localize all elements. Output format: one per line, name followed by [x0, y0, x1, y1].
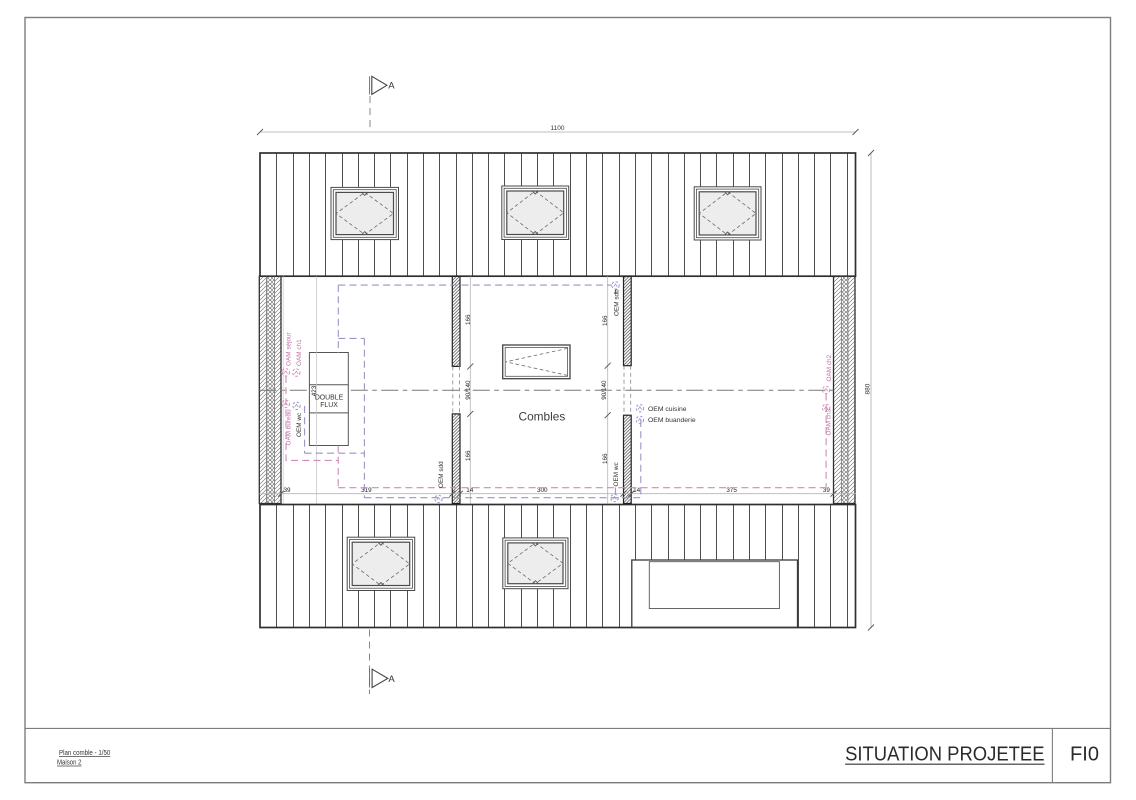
svg-text:DOUBLE: DOUBLE [315, 395, 344, 402]
svg-text:FLUX: FLUX [320, 402, 338, 409]
svg-text:Combles: Combles [519, 409, 566, 423]
svg-text:1100: 1100 [551, 125, 565, 132]
svg-text:90/140: 90/140 [601, 380, 608, 400]
svg-text:A: A [388, 674, 395, 685]
svg-text:FI0: FI0 [1070, 744, 1099, 766]
svg-text:166: 166 [602, 315, 609, 326]
svg-text:OEM wc: OEM wc [613, 462, 620, 487]
svg-text:OAM séjour: OAM séjour [286, 331, 293, 366]
svg-text:OEM cuisine: OEM cuisine [648, 406, 687, 413]
svg-text:OEM sdd: OEM sdd [438, 461, 445, 488]
svg-text:880: 880 [865, 383, 872, 394]
svg-text:39: 39 [283, 487, 291, 494]
svg-text:OAM ch1: OAM ch1 [296, 339, 303, 366]
svg-text:OAM bureau: OAM bureau [286, 409, 293, 446]
svg-text:Plan comble - 1/50: Plan comble - 1/50 [59, 750, 110, 757]
svg-text:SITUATION PROJETEE: SITUATION PROJETEE [845, 744, 1044, 766]
svg-text:166: 166 [465, 314, 472, 325]
svg-text:OEM wc: OEM wc [296, 412, 303, 437]
svg-text:OAM ch2: OAM ch2 [826, 354, 833, 381]
svg-text:OEM buanderie: OEM buanderie [648, 417, 696, 424]
svg-text:90/140: 90/140 [465, 380, 472, 400]
svg-text:OAM ch3: OAM ch3 [826, 408, 833, 435]
svg-text:Maison 2: Maison 2 [57, 759, 82, 766]
svg-text:OEM sdb: OEM sdb [614, 289, 621, 316]
svg-text:A: A [388, 81, 395, 92]
svg-text:166: 166 [602, 453, 609, 464]
svg-text:166: 166 [465, 450, 472, 461]
